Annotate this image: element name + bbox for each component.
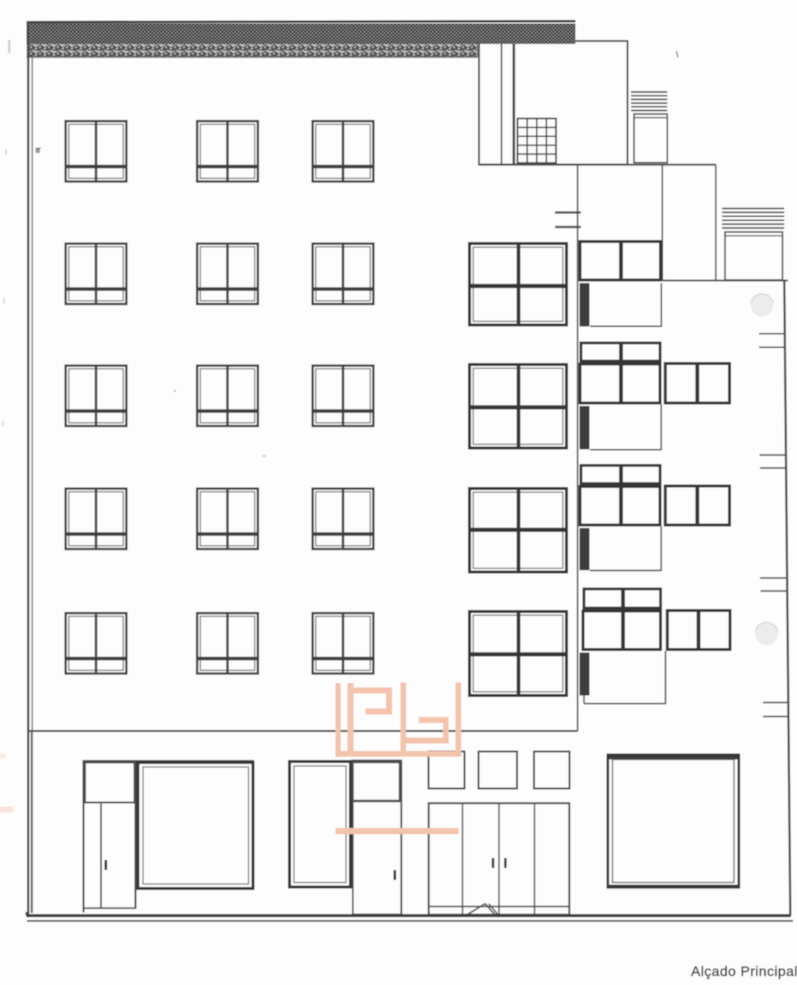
svg-text:Alçado Principal: Alçado Principal bbox=[691, 963, 797, 979]
